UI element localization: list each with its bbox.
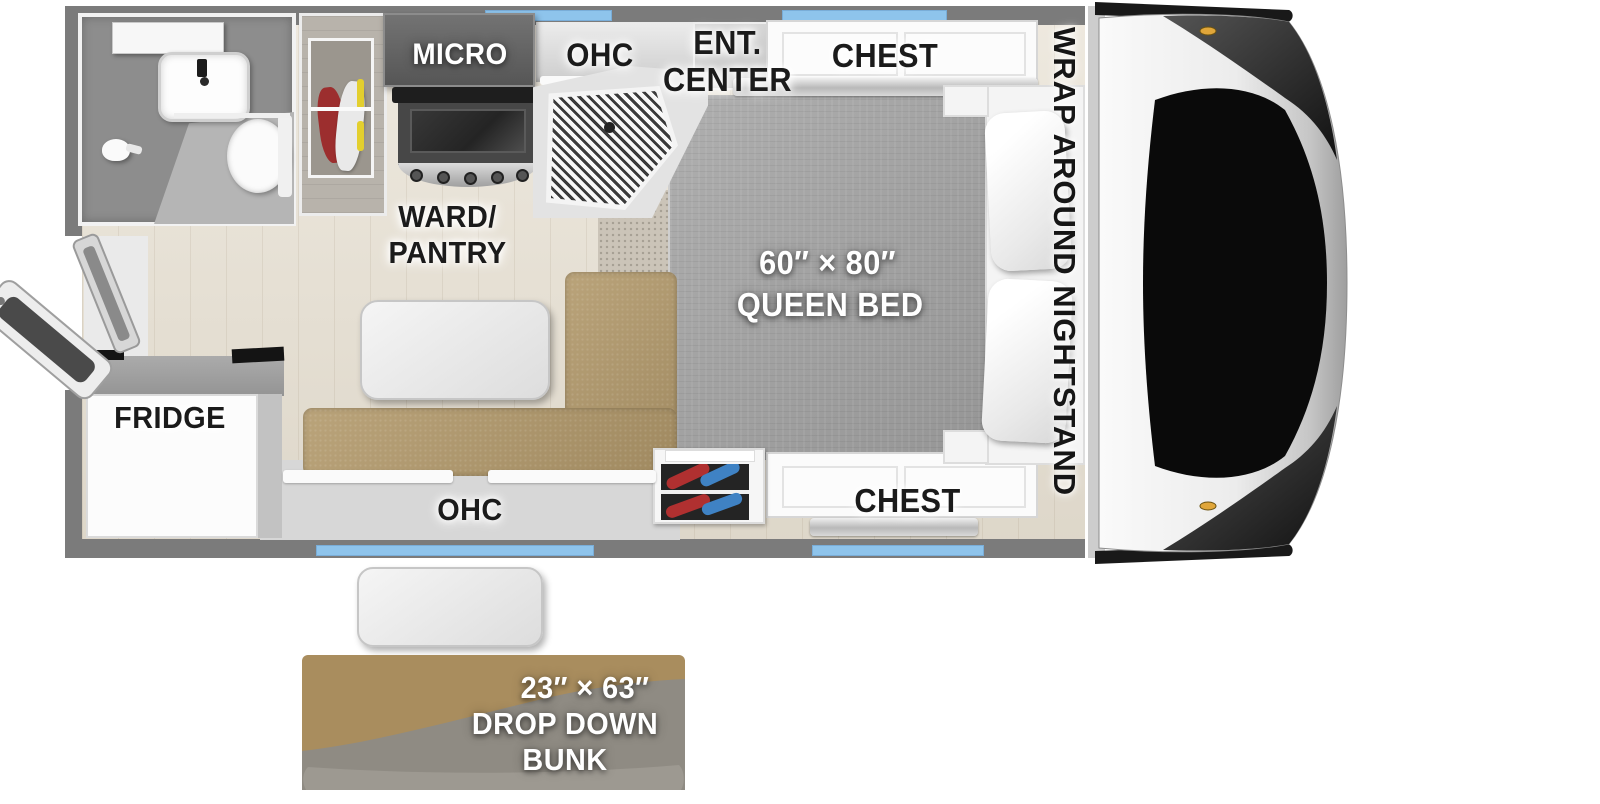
bathroom-sink	[158, 52, 250, 122]
dinette-table	[360, 300, 550, 400]
wrap-around-nightstand-label: WRAP AROUND NIGHTSTAND	[1046, 27, 1082, 496]
cab-window	[1143, 88, 1327, 478]
chest-bottom-rail	[810, 518, 978, 536]
nightstand-top-corner	[943, 85, 989, 117]
hanger-yellow-2	[357, 121, 364, 151]
chest-top-label: CHEST	[806, 39, 964, 72]
oven-window	[410, 109, 526, 153]
wardrobe-interior	[308, 38, 374, 178]
screen-door	[72, 233, 141, 354]
queen-bed-label-line2: QUEEN BED	[737, 288, 918, 321]
ohc-kitchen-label: OHC	[563, 39, 637, 71]
front-cap	[1093, 0, 1373, 566]
bunk-label-line1: 23″ × 63″	[478, 672, 692, 703]
range-knob	[491, 171, 504, 184]
bathroom	[78, 13, 296, 226]
queen-bed-label-line1: 60″ × 80″	[737, 246, 918, 279]
ent-center-label-line2: CENTER	[655, 63, 799, 96]
range-knob	[464, 172, 477, 185]
nightstand-bottom-corner	[943, 430, 989, 464]
wall-left-lower	[65, 390, 82, 558]
ward-pantry-label-line1: WARD/	[385, 201, 511, 232]
ohc-dinette-label: OHC	[433, 494, 507, 525]
bathroom-divider	[174, 113, 290, 118]
range-oven	[398, 103, 538, 165]
window-bottom-2	[812, 545, 984, 556]
range-hood	[392, 87, 540, 103]
bunk-label-line3: BUNK	[449, 744, 682, 775]
sofa-trim	[488, 470, 656, 483]
wardrobe-closet	[299, 13, 387, 216]
sink-drain	[200, 77, 209, 86]
chest-bottom-label: CHEST	[826, 484, 989, 517]
cubby-lid	[665, 450, 755, 462]
counter-trim-right	[232, 347, 285, 364]
entry-door-assembly	[0, 215, 200, 415]
fridge-side-panel	[258, 394, 282, 538]
storage-cubby	[653, 448, 765, 524]
bunk-table	[357, 567, 543, 647]
toilet-tank	[278, 115, 292, 197]
bathroom-faucet	[197, 59, 207, 77]
kitchen-sink-drain	[604, 122, 615, 133]
range-knob	[410, 169, 423, 182]
sofa-trim	[283, 470, 453, 483]
fridge-label: FRIDGE	[100, 402, 240, 433]
range-knob	[437, 171, 450, 184]
ward-pantry-label-line2: PANTRY	[385, 237, 511, 268]
sofa-dinette	[303, 408, 677, 476]
hanger-yellow-1	[357, 79, 364, 109]
ent-center-label-line1: ENT.	[655, 26, 799, 59]
window-bottom-1	[316, 545, 594, 556]
bunk-label-line2: DROP DOWN	[449, 708, 682, 739]
clearance-light	[1200, 502, 1216, 510]
clearance-light	[1200, 27, 1216, 35]
camper-floorplan: MICRO OHC ENT. CENTER CHEST WARD/ PANTRY…	[0, 0, 1600, 804]
medicine-cabinet	[112, 22, 224, 54]
closet-rod	[311, 107, 371, 111]
range-knob	[516, 169, 529, 182]
micro-label: MICRO	[390, 40, 530, 70]
cubby-interior	[661, 464, 749, 520]
